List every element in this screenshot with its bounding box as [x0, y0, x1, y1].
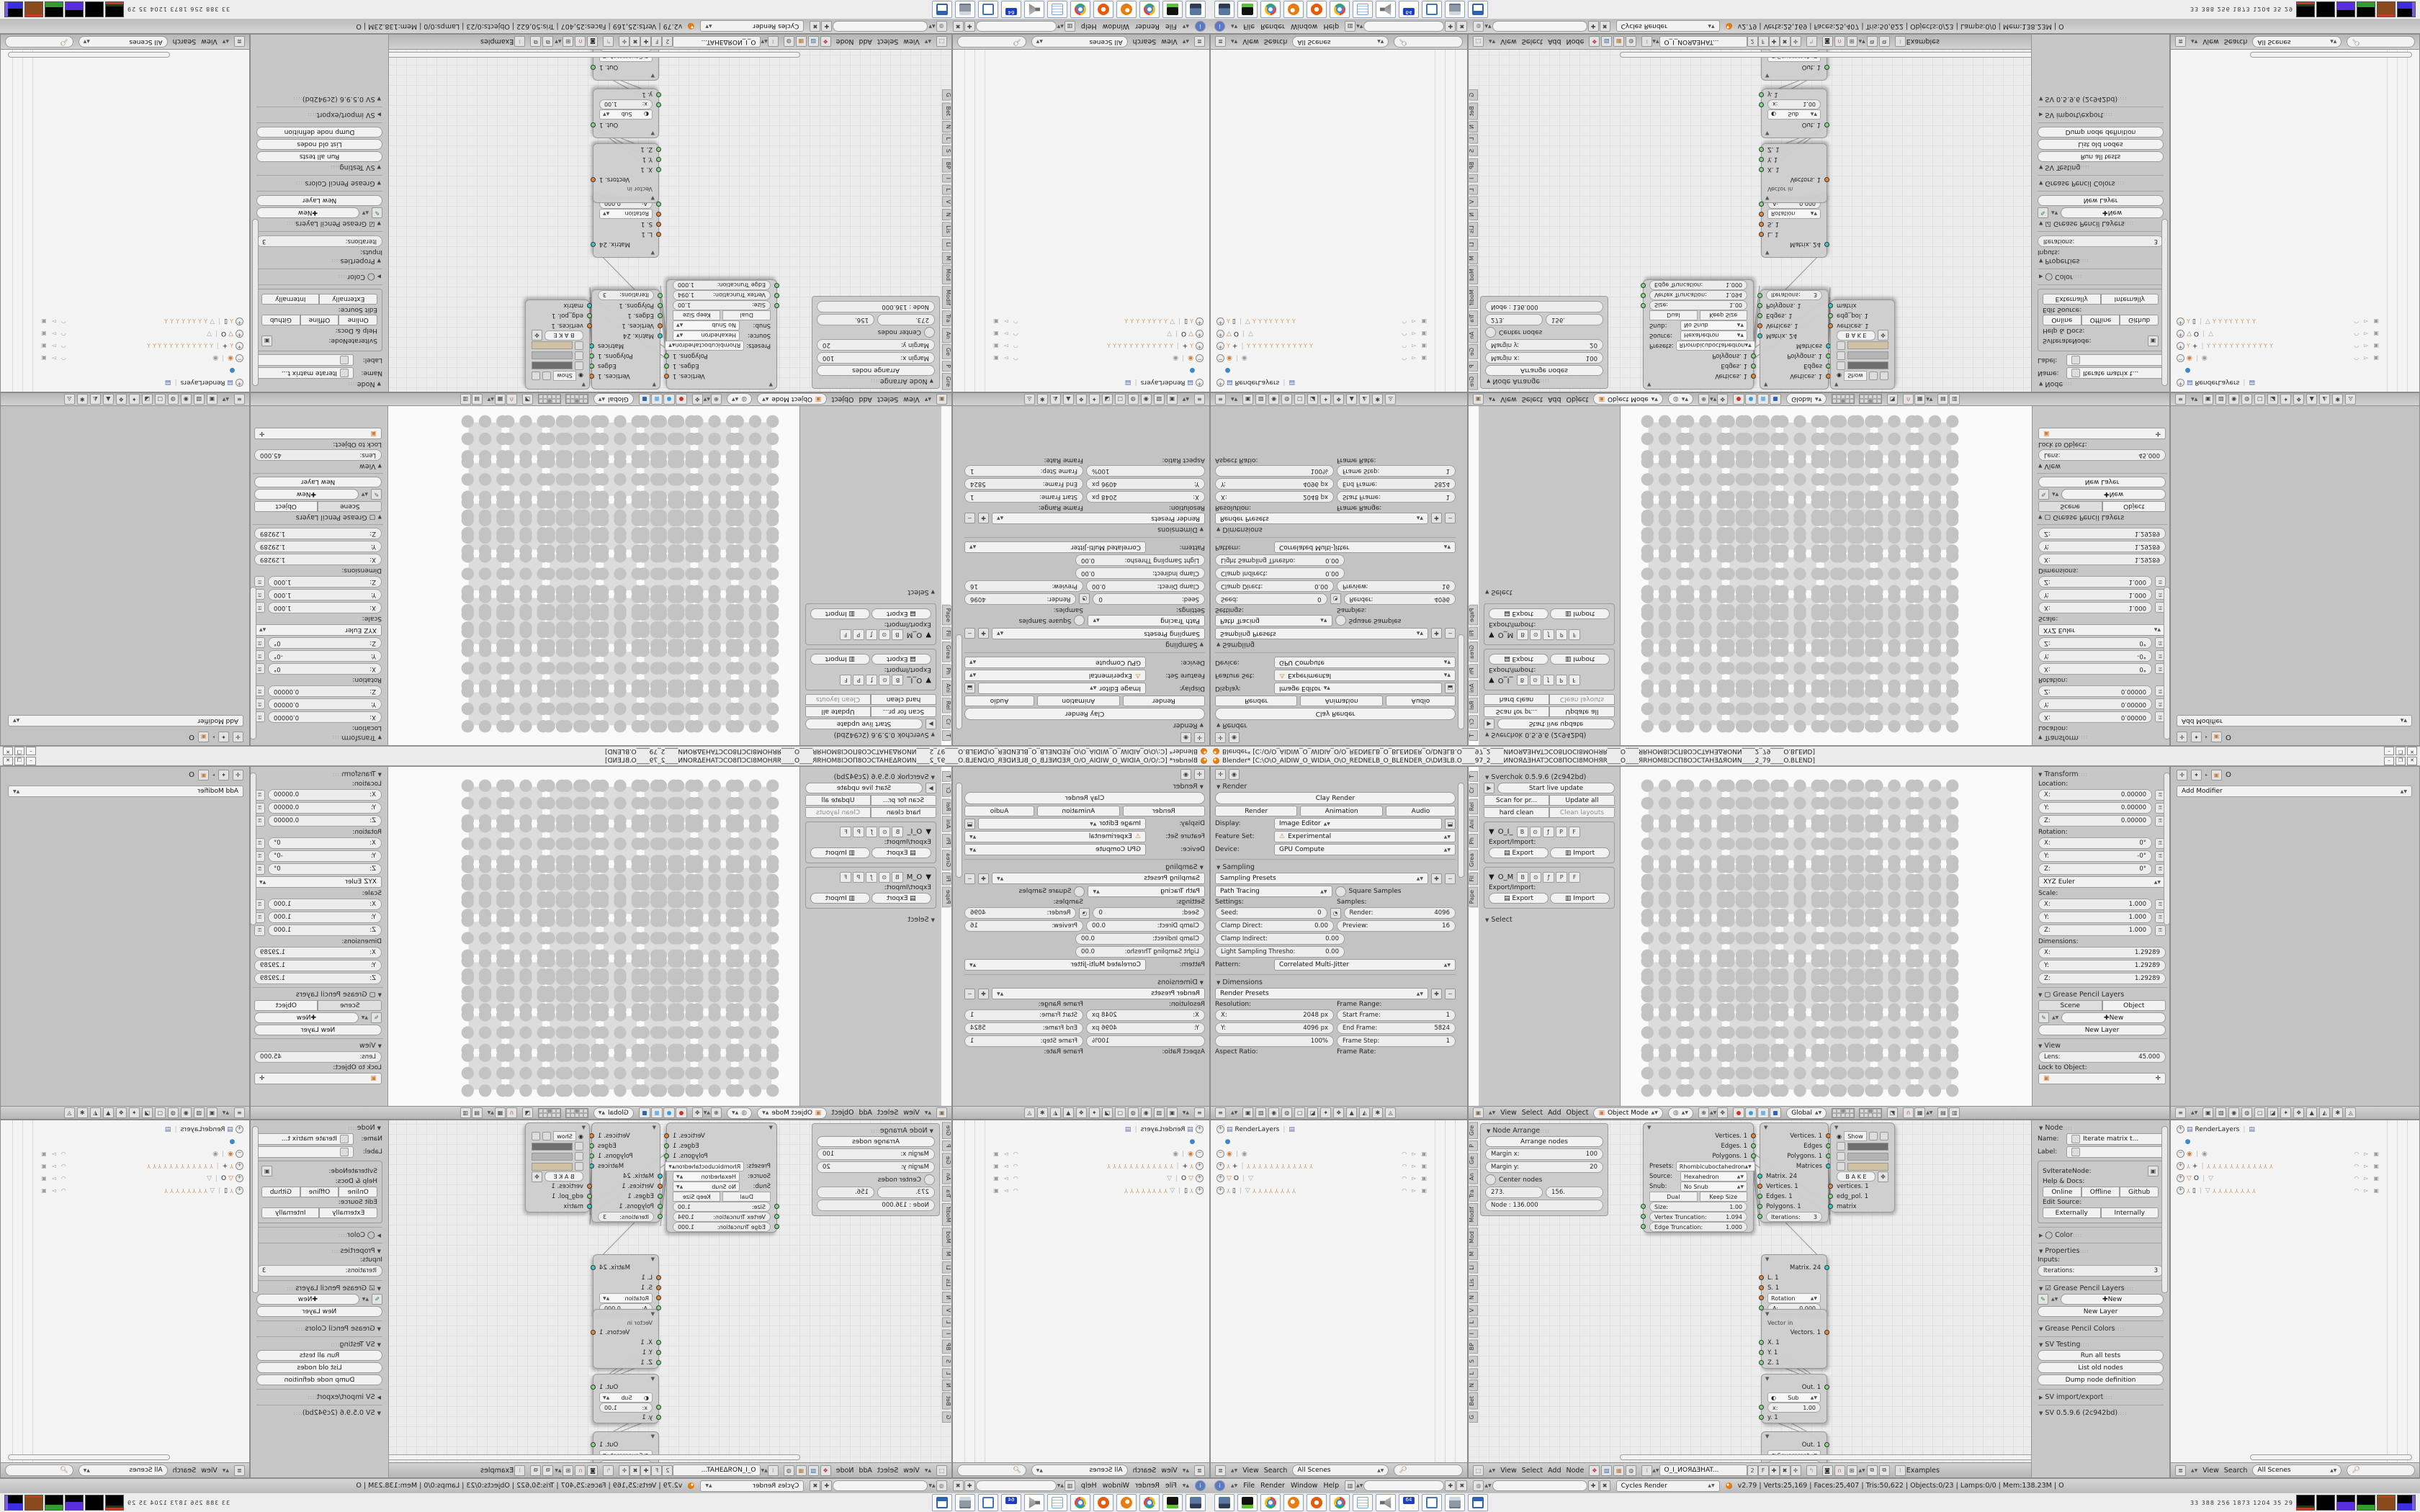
toolshelf-tab-rel[interactable]: Rel — [942, 698, 951, 714]
node-number-field[interactable]: Size:1.00 — [673, 300, 771, 310]
render-panel-header[interactable]: ▼ Render — [1216, 783, 1456, 791]
editor-type-info-icon[interactable]: i — [1195, 1480, 1206, 1491]
transform-value-slider[interactable]: X:1.000 — [268, 602, 382, 613]
tray-monitor-graph[interactable] — [2357, 1, 2375, 17]
layer-cell[interactable] — [575, 395, 579, 400]
npanel-scrollbar[interactable] — [2164, 773, 2170, 925]
tree-toggle-ƒ[interactable]: ƒ — [1543, 629, 1554, 640]
sampling-panel-header[interactable]: ▼ Sampling — [964, 641, 1204, 649]
sampling-presets-dropdown[interactable]: Sampling Presets▲▼ — [992, 873, 1205, 884]
node-name-field[interactable]: Iterate matrix t... — [2066, 367, 2164, 379]
outliner-search-input[interactable]: 🔎︎ — [2347, 1464, 2415, 1476]
remove-preset-button[interactable]: ─ — [964, 629, 975, 639]
socket-input[interactable] — [774, 303, 779, 308]
gp-new-layer-button[interactable]: New Layer — [254, 477, 382, 487]
toolshelf-tab-li[interactable]: Li — [1469, 1261, 1478, 1274]
snap-magnet-icon[interactable]: ∩ — [1903, 1107, 1914, 1118]
node-npanel-scrollbar[interactable] — [2161, 1126, 2168, 1293]
view3d-menu-object[interactable]: Object — [832, 1109, 854, 1117]
generator-node[interactable]: ▼Vertices. 1Edges. 1Polygons. 1Presets:R… — [666, 279, 777, 390]
expand-icon[interactable]: + — [2177, 379, 2184, 387]
sverchok-panel-header[interactable]: ▼ Sverchok 0.5.9.6 (2c942bd) — [1485, 773, 1615, 781]
properties-tab-icon-1[interactable]: ▧ — [1154, 1107, 1165, 1118]
lock-icon[interactable]: ⚿ — [2155, 925, 2166, 936]
expand-icon[interactable]: + — [2177, 1162, 2184, 1170]
layers-grid-a[interactable] — [1832, 395, 1855, 405]
add-preset-button[interactable]: ✚ — [1431, 629, 1442, 639]
properties-tab-icon-6[interactable]: ✦ — [2280, 1107, 2291, 1118]
minimize-button[interactable]: – — [2384, 747, 2394, 756]
screen-delete-button[interactable]: ✖ — [1456, 21, 1467, 32]
copy-node-icon[interactable]: ⧉ — [542, 1465, 553, 1476]
taskbar-app-blender[interactable] — [1283, 1, 1304, 18]
toolshelf-tab-i[interactable]: I — [942, 1329, 951, 1338]
restrict-toggle-icon[interactable]: ▻ — [52, 343, 56, 349]
view-panel-header[interactable]: ▼ View — [250, 1042, 382, 1050]
taskbar-app-image[interactable] — [1422, 1, 1442, 18]
taskbar-app-image[interactable] — [978, 1, 998, 18]
bake-button[interactable]: B A K E — [544, 330, 583, 341]
restrict-toggle-icon[interactable]: ▻ — [52, 1187, 56, 1194]
pivot-align-icon[interactable]: ✥ — [692, 1107, 703, 1118]
info-menu-help[interactable]: Help — [1081, 22, 1097, 30]
layer-cell[interactable] — [1850, 395, 1854, 400]
properties-tab-icon-2[interactable]: ◉ — [181, 394, 192, 405]
outliner-row[interactable]: +Y▯|▽YYYYYYYY◠▻▣ — [989, 315, 1209, 328]
outliner-menu-view[interactable]: View — [1242, 38, 1259, 46]
tree-type-shader-icon[interactable]: ❖ — [820, 1465, 831, 1476]
snap-element-icon[interactable]: ▦ — [495, 394, 506, 405]
layer-cell[interactable] — [1877, 400, 1881, 404]
outliner-search-input[interactable]: 🔎︎ — [5, 1464, 73, 1476]
expand-icon[interactable]: − — [2177, 354, 2184, 362]
screen-layout-field[interactable] — [1363, 1480, 1444, 1491]
properties-tab-icon-8[interactable]: ▲ — [1063, 1107, 1074, 1118]
view3d-menu-view[interactable]: View — [1500, 1109, 1517, 1117]
light-threshold-slider[interactable]: Light Sampling Thresho:0.00 — [1215, 946, 1345, 958]
node-label-field[interactable] — [2066, 1146, 2164, 1158]
info-menu-render[interactable]: Render — [1135, 22, 1160, 30]
restrict-toggle-icon[interactable]: ▣ — [1421, 330, 1427, 337]
toolshelf-tab-grea[interactable]: Grea — [942, 850, 951, 870]
lens-slider[interactable]: Lens:45.000 — [254, 449, 382, 461]
properties-tab-icon-11[interactable]: ◬ — [2345, 394, 2356, 405]
node-menu-view[interactable]: View — [903, 38, 920, 46]
pivot-align-icon[interactable]: ✥ — [1717, 394, 1728, 405]
toolshelf-tab-ge[interactable]: Ge — [1469, 344, 1478, 359]
manipulator-rotate-icon[interactable] — [1745, 394, 1757, 405]
properties-tab-icon-4[interactable]: ▢ — [1294, 1107, 1305, 1118]
properties-tab-icon-2[interactable]: ◉ — [1268, 394, 1279, 405]
node-tree-icon[interactable]: ⁝ — [768, 37, 779, 48]
toolshelf-tab-ph[interactable]: Ph — [1469, 664, 1478, 678]
gp-object-button[interactable]: Object — [254, 1000, 318, 1011]
layer-cell[interactable] — [552, 1113, 556, 1117]
edit-internally-button[interactable]: Internally — [261, 1207, 320, 1218]
expand-icon[interactable]: + — [1196, 1125, 1204, 1133]
toolshelf-tab-bp[interactable]: BP — [942, 1339, 951, 1354]
render-presets-dropdown[interactable]: Render Presets▲▼ — [1215, 513, 1428, 524]
editor-type-properties-icon[interactable]: ≡ — [2175, 394, 2186, 405]
iterations-slider[interactable]: Iterations:3 — [2038, 235, 2164, 247]
node-tree-icon[interactable]: ⁝ — [768, 1465, 779, 1476]
frame-step-slider[interactable]: Frame Step:1 — [964, 465, 1083, 477]
taskbar-app-floppy[interactable]: 64 — [1001, 1, 1021, 18]
layers-grid-a[interactable] — [565, 1108, 588, 1118]
outliner-menu-view[interactable]: View — [201, 1467, 218, 1475]
add-dim-preset-button[interactable]: ✚ — [1431, 513, 1442, 524]
tray-monitor-graph[interactable] — [85, 1, 104, 17]
taskbar-app-spiral[interactable] — [1093, 1494, 1113, 1511]
orientation-dropdown[interactable]: Global▲▼ — [1786, 1107, 1827, 1119]
tray-monitor-graph[interactable] — [2377, 1, 2396, 17]
math-sub-node[interactable]: ▼Out. 1◐Sub▲▼x:1.00y. 1 — [593, 89, 659, 138]
toolshelf-tab-p[interactable]: P — [1469, 1140, 1478, 1151]
minimize-button[interactable]: – — [2384, 757, 2394, 765]
transform-value-slider[interactable]: Z:1.29289 — [254, 973, 382, 984]
editor-type-properties-icon[interactable]: ≡ — [234, 394, 245, 405]
scene-icon[interactable]: ◍ — [936, 21, 947, 32]
dump-node-definition-button[interactable]: Dump node definition — [256, 127, 382, 138]
node-arrange-header[interactable]: ▼ Node Arrange:::: — [817, 377, 933, 385]
tree-toggle-⊙[interactable]: ⊙ — [879, 629, 890, 640]
toolshelf-tab-fil[interactable]: Fil — [1469, 627, 1478, 640]
properties-tab-icon-3[interactable]: ◍ — [168, 394, 179, 405]
lock-icon[interactable]: ⚿ — [254, 577, 265, 588]
properties-tab-icon-7[interactable]: ❖ — [2293, 394, 2304, 405]
editor-type-info-icon[interactable]: i — [1214, 1480, 1225, 1491]
restrict-toggle-icon[interactable]: ▣ — [993, 343, 999, 349]
socket-input[interactable] — [658, 1204, 663, 1209]
editor-type-outliner-icon[interactable]: ≣ — [2175, 1465, 2186, 1476]
vector-in-node[interactable]: ▼Vector inVectors. 1X. 1Y. 1Z. 1 — [1761, 1309, 1827, 1369]
tree-toggle-F[interactable]: F — [840, 629, 851, 640]
editor-type-properties-icon[interactable]: ≡ — [234, 1107, 245, 1118]
socket-input[interactable] — [658, 313, 663, 318]
edit-internally-button[interactable]: Internally — [2101, 294, 2159, 305]
transform-value-slider[interactable]: Z:1.29289 — [2038, 528, 2166, 539]
gp-new-layer-button[interactable]: New Layer — [256, 1306, 382, 1317]
toolshelf-tab-s[interactable]: S — [942, 145, 951, 156]
node-menu-view[interactable]: View — [1500, 38, 1517, 46]
taskbar-app-calc[interactable] — [955, 1494, 975, 1511]
scene-add-button[interactable]: ✚ — [1588, 1480, 1599, 1491]
properties-tab-icon-4[interactable]: ▢ — [1294, 394, 1305, 405]
socket-output[interactable] — [1824, 1265, 1829, 1270]
clamp-direct-slider[interactable]: Clamp Direct:0.00 — [1215, 580, 1334, 592]
start-frame-slider[interactable]: Start Frame:1 — [1337, 1009, 1456, 1021]
layer-cell[interactable] — [539, 1113, 543, 1117]
properties-tab-icon-1[interactable]: ▧ — [194, 1107, 205, 1118]
sverchok-update-icon[interactable]: ◙ — [587, 37, 598, 48]
socket-input[interactable] — [1757, 333, 1762, 338]
manipulator-extra-icon[interactable] — [1770, 1107, 1781, 1118]
toolshelf-tab-fil[interactable]: Fil — [942, 627, 951, 640]
center-nodes-checkbox[interactable] — [1485, 1174, 1496, 1185]
socket-input[interactable] — [656, 157, 661, 162]
manipulator-rotate-icon[interactable] — [663, 394, 675, 405]
node-menu-add[interactable]: Add — [1548, 1467, 1561, 1475]
toolshelf-tab-ani[interactable]: Ani — [942, 816, 951, 832]
scan-for-props-button[interactable]: Scan for pr... — [1484, 706, 1549, 717]
node-toggle-keep-size[interactable]: Keep Size — [1700, 310, 1748, 320]
pivot-align-icon[interactable]: ✥ — [1717, 1107, 1728, 1118]
layers-grid-b[interactable] — [1859, 395, 1882, 405]
properties-tab-icon-8[interactable]: ▲ — [2306, 1107, 2317, 1118]
node-toggle-dual[interactable]: Dual — [1649, 310, 1698, 320]
snap-mode-icon[interactable]: ⊞ — [563, 1465, 573, 1476]
outliner-row[interactable]: +▽O|▽◠▻▣ — [37, 328, 249, 340]
taskbar-app-storage[interactable] — [1162, 1, 1183, 18]
tree-toggle-P[interactable]: P — [853, 827, 864, 837]
info-menu-file[interactable]: File — [1243, 22, 1255, 30]
outliner-row[interactable]: +▽O|▽◠▻▣ — [1211, 1172, 1431, 1184]
taskbar-app-spiral[interactable] — [1307, 1494, 1327, 1511]
rotation-mode-dropdown[interactable]: XYZ Euler▲▼ — [254, 876, 382, 888]
socket-output[interactable] — [591, 242, 596, 247]
seed-animate-icon[interactable]: ◔ — [1330, 908, 1341, 919]
node-toggle-keep-size[interactable]: Keep Size — [673, 1192, 721, 1202]
toolshelf-tab-mod[interactable]: Mod — [1469, 1228, 1478, 1247]
node-menu-view[interactable]: View — [903, 1467, 920, 1475]
render-opengl-icon[interactable]: ▤ — [472, 1107, 483, 1118]
restrict-toggle-icon[interactable]: ▻ — [52, 318, 56, 325]
toolshelf-tab-g[interactable]: G — [942, 89, 951, 101]
outliner-search-input[interactable]: 🔎︎ — [957, 36, 1026, 48]
outliner-row[interactable]: +▤RenderLayers|▤ — [2171, 377, 2383, 389]
properties-tab-icon-5[interactable]: ◪ — [142, 1107, 153, 1118]
transform-value-slider[interactable]: Z:0.00000 — [268, 685, 382, 697]
info-menu-help[interactable]: Help — [1323, 1482, 1339, 1490]
tree-type-shader-icon[interactable]: ❖ — [820, 37, 831, 48]
socket-input[interactable] — [656, 1405, 661, 1410]
device-dropdown[interactable]: GPU Compute▲▼ — [964, 844, 1146, 855]
clean-layouts-button[interactable]: Clean layouts — [1549, 694, 1615, 705]
outliner-search-input[interactable]: 🔎︎ — [1394, 36, 1463, 48]
mode-dropdown[interactable]: ▣Object Mode▲▼ — [757, 394, 826, 405]
close-button[interactable]: ✕ — [3, 747, 13, 756]
toolshelf-tab-ani[interactable]: Ani — [1469, 816, 1478, 832]
editor-type-outliner-icon[interactable]: ≣ — [2175, 37, 2186, 48]
properties-tab-icon-2[interactable]: ◉ — [2228, 394, 2239, 405]
properties-tab-icon-6[interactable]: ✦ — [1320, 394, 1331, 405]
expand-icon[interactable]: + — [1216, 330, 1224, 338]
matrix-in-node[interactable]: ▼Matrix. 24L. 1S. 1Rotation▲▼A:0.000 — [593, 1254, 659, 1314]
resolution-x-slider[interactable]: X:2048 px — [1215, 491, 1334, 503]
layer-cell[interactable] — [579, 400, 583, 404]
properties-tab-icon-3[interactable]: ◍ — [168, 1107, 179, 1118]
sv-version-panel-header[interactable]: ▼ SV 0.5.9.6 (2c942bd):::: — [256, 95, 381, 103]
display-dropdown[interactable]: Image Editor▲▼ — [1274, 683, 1442, 694]
hard-clean-button[interactable]: hard clean — [1484, 807, 1549, 818]
restrict-toggle-icon[interactable]: ▣ — [993, 1163, 999, 1169]
transform-value-slider[interactable]: Z:1.000 — [2038, 924, 2152, 936]
pin-icon[interactable]: ✛ — [2177, 770, 2187, 780]
layer-cell[interactable] — [579, 1113, 583, 1117]
properties-tab-icon-11[interactable]: ◬ — [1024, 394, 1035, 405]
render-button[interactable]: Render — [1215, 696, 1297, 706]
select-panel-header[interactable]: ▼ Select — [1485, 588, 1615, 596]
node-name-field[interactable]: Iterate matrix t... — [256, 367, 354, 379]
taskbar-app-calc[interactable] — [1445, 1494, 1465, 1511]
tree-type-texture-icon[interactable]: ▦ — [796, 37, 807, 48]
taskbar-app-volume[interactable] — [1024, 1, 1044, 18]
view3d-menu-select[interactable]: Select — [1522, 395, 1543, 403]
restrict-toggle-icon[interactable]: ◠ — [61, 318, 66, 325]
manipulator-extra-icon[interactable] — [639, 394, 650, 405]
help-offline-button[interactable]: Offline — [2081, 1187, 2120, 1197]
toolshelf-tab-an[interactable]: An — [942, 1169, 951, 1184]
tray-monitor-graph[interactable] — [105, 1, 124, 17]
screen-delete-button[interactable]: ✖ — [1456, 1480, 1467, 1491]
socket-input[interactable] — [587, 1204, 592, 1209]
expand-icon[interactable]: + — [1216, 379, 1224, 387]
tree-new-button[interactable]: ✚ — [640, 37, 651, 48]
restrict-toggle-icon[interactable]: ◠ — [2354, 330, 2359, 337]
screen-delete-button[interactable]: ✖ — [953, 1480, 964, 1491]
bake-options-icon[interactable]: ✥ — [1878, 1171, 1888, 1182]
socket-input[interactable] — [1641, 293, 1646, 298]
transform-value-slider[interactable]: X:1.000 — [2038, 899, 2152, 910]
socket-output[interactable] — [589, 364, 594, 369]
tree-type-texture-icon[interactable]: ▦ — [796, 1465, 807, 1476]
gp-pencil-icon[interactable]: ✎ — [2038, 207, 2048, 218]
outliner-row[interactable]: ● — [2171, 364, 2383, 377]
tree-toggle-P[interactable]: P — [853, 675, 864, 685]
restrict-toggle-icon[interactable]: ▻ — [2364, 1187, 2368, 1194]
layer-cell[interactable] — [539, 395, 543, 400]
outliner-row[interactable]: +Y▯|▽YYYYYYYY◠▻▣ — [989, 1184, 1209, 1197]
sv-import-export-panel-header[interactable]: ▶ SV import/export:::: — [256, 1393, 381, 1401]
maximize-button[interactable]: ❐ — [14, 757, 24, 765]
sampling-panel-header[interactable]: ▼ Sampling — [1216, 863, 1456, 871]
properties-tab-icon-10[interactable]: ✱ — [77, 394, 88, 405]
toolshelf-tab-t[interactable]: T — [1469, 771, 1478, 782]
outliner-menu-view[interactable]: View — [1161, 38, 1178, 46]
toolshelf-tab-bp[interactable]: BP — [942, 158, 951, 173]
info-menu-help[interactable]: Help — [1081, 1482, 1097, 1490]
scene-add-button[interactable]: ✚ — [1588, 21, 1599, 32]
layer-cell[interactable] — [1877, 1113, 1881, 1117]
node-number-field[interactable]: Iterations:3 — [598, 1212, 654, 1222]
gp-scene-button[interactable]: Scene — [318, 501, 382, 512]
render-button[interactable]: Render — [1123, 806, 1205, 816]
screen-layout-icon[interactable]: ▥ — [1065, 1480, 1075, 1491]
restrict-toggle-icon[interactable]: ▻ — [1004, 330, 1008, 337]
properties-tab-icon-5[interactable]: ◪ — [2267, 394, 2278, 405]
render-opengl-anim-icon[interactable]: ▥ — [1949, 394, 1960, 405]
tree-type-compositing-icon[interactable]: ▨ — [808, 1465, 819, 1476]
export-button[interactable]: ▤ Export — [871, 847, 931, 858]
expand-icon[interactable]: − — [1216, 354, 1224, 362]
node-number-field[interactable]: x:1.00 — [599, 1403, 653, 1413]
socket-output[interactable] — [664, 364, 669, 369]
view3d-menu-view[interactable]: View — [903, 395, 920, 403]
restrict-toggle-icon[interactable]: ▻ — [52, 1151, 56, 1157]
toolshelf-tab-l[interactable]: L — [1469, 1317, 1478, 1327]
resolution-y-slider[interactable]: Y:4096 px — [1086, 1022, 1205, 1034]
outliner-hscrollbar[interactable] — [8, 1454, 170, 1460]
outliner-row[interactable]: +▤RenderLayers|▤ — [37, 1123, 249, 1135]
transform-value-slider[interactable]: Y:-0° — [2038, 850, 2152, 862]
start-frame-slider[interactable]: Start Frame:1 — [964, 491, 1083, 503]
properties-tab-icon-10[interactable]: ✱ — [1037, 1107, 1048, 1118]
restrict-toggle-icon[interactable]: ▣ — [1421, 343, 1427, 349]
tree-toggle-B[interactable]: B — [892, 629, 903, 640]
export-button[interactable]: ▤ Export — [1489, 654, 1549, 665]
editor-type-outliner-icon[interactable]: ≣ — [1194, 1465, 1205, 1476]
socket-input[interactable] — [1757, 1174, 1762, 1179]
toolshelf-tab-grea[interactable]: Grea — [1469, 642, 1478, 662]
transform-value-slider[interactable]: Z:1.000 — [2038, 576, 2152, 588]
editor-type-node-icon[interactable]: ⬚ — [1473, 37, 1484, 48]
orientation-dropdown[interactable]: Global▲▼ — [593, 1107, 634, 1119]
editor-type-node-icon[interactable]: ⬚ — [936, 37, 947, 48]
toolshelf-tab-g[interactable]: G — [942, 1411, 951, 1423]
expand-icon[interactable]: + — [1196, 342, 1204, 350]
lock-object-field[interactable]: ▣✛ — [2038, 1073, 2166, 1084]
dimensions-panel-header[interactable]: ▼ Dimensions — [1216, 978, 1456, 986]
tree-toggle-⊙[interactable]: ⊙ — [879, 827, 890, 837]
tree-type-texture-icon[interactable]: ▦ — [1613, 1465, 1624, 1476]
gp-pencil-icon[interactable]: ✎ — [371, 1012, 382, 1023]
tree-toggle-F[interactable]: F — [840, 872, 851, 883]
outliner-row[interactable]: −◉|◉◠▻▣ — [989, 1148, 1209, 1160]
display-lock-icon[interactable]: ⬓ — [964, 683, 975, 694]
outliner-menu-view[interactable]: View — [2202, 38, 2219, 46]
toolshelf-tab-lis[interactable]: Lis — [942, 1275, 951, 1290]
minimize-button[interactable]: – — [26, 757, 36, 765]
properties-tab-icon-0[interactable]: ▣ — [207, 394, 218, 405]
outliner-row[interactable]: +▽O|▽◠▻▣ — [1211, 328, 1431, 340]
start-frame-slider[interactable]: Start Frame:1 — [964, 1009, 1083, 1021]
properties-tab-icon-0[interactable]: ▣ — [1242, 394, 1253, 405]
arrange-nodes-button[interactable]: Arrange nodes — [1485, 1136, 1603, 1147]
dimensions-panel-header[interactable]: ▼ Dimensions — [1216, 526, 1456, 534]
properties-tab-icon-2[interactable]: ◉ — [181, 1107, 192, 1118]
add-modifier-dropdown[interactable]: Add Modifier▲▼ — [8, 786, 243, 797]
iterations-slider[interactable]: Iterations:3 — [256, 235, 382, 247]
node-toggle-keep-size[interactable]: Keep Size — [1700, 1192, 1748, 1202]
layer-cell[interactable] — [583, 400, 588, 404]
properties-tab-icon-0[interactable]: ▣ — [1242, 1107, 1253, 1118]
scene-name-field[interactable] — [833, 1480, 928, 1491]
transform-value-slider[interactable]: Y:1.29289 — [2038, 960, 2166, 971]
node-enum-dropdown[interactable]: No Snub▲▼ — [673, 320, 740, 330]
render-context-icon[interactable]: ◉ — [1180, 732, 1191, 743]
restrict-toggle-icon[interactable]: ◠ — [2354, 355, 2359, 361]
node-number-field[interactable]: Vertex Truncation:1.094 — [1649, 290, 1747, 300]
toolshelf-tab-fil[interactable]: Fil — [942, 872, 951, 885]
gp-new-button[interactable]: ✚ New — [2061, 1012, 2166, 1023]
transform-value-slider[interactable]: Y:-0° — [268, 650, 382, 662]
toolshelf-tab-an[interactable]: An — [1469, 1169, 1478, 1184]
layer-cell[interactable] — [1850, 400, 1854, 404]
node-tree-icon[interactable]: ⁝ — [1641, 37, 1652, 48]
layer-cell[interactable] — [575, 400, 579, 404]
toolshelf-tab-l[interactable]: L — [1469, 1368, 1478, 1378]
properties-tab-icon-0[interactable]: ▣ — [207, 1107, 218, 1118]
outliner-row[interactable]: +Y+|YYYYYYYYYYYY◠▻▣ — [37, 340, 249, 352]
seed-slider[interactable]: Seed:0 — [1093, 593, 1206, 605]
gp-new-button[interactable]: ✚ New — [2061, 1294, 2164, 1305]
viewer-color-swatch[interactable] — [1847, 342, 1888, 350]
outliner-row[interactable]: +Y▯|▽YYYYYYYY◠▻▣ — [1211, 1184, 1431, 1197]
transform-value-slider[interactable]: X:1.29289 — [254, 554, 382, 565]
pin-icon[interactable]: ✛ — [2177, 732, 2187, 742]
taskbar-app-storage[interactable] — [1162, 1494, 1183, 1511]
transform-value-slider[interactable]: X:0.00000 — [268, 711, 382, 723]
